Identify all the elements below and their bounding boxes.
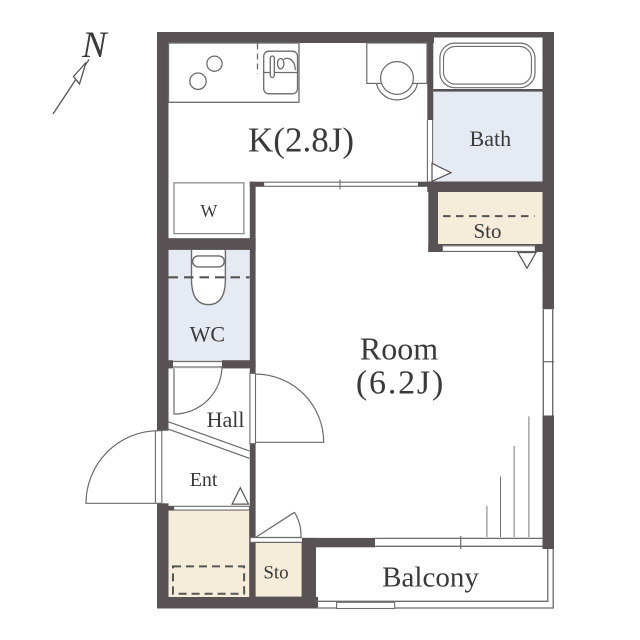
svg-text:Sto: Sto (263, 563, 288, 584)
svg-text:N: N (81, 25, 109, 66)
svg-text:K(2.8J): K(2.8J) (248, 121, 354, 160)
svg-text:W: W (200, 201, 217, 221)
svg-text:Room: Room (360, 331, 438, 367)
svg-text:(6.2J): (6.2J) (356, 365, 445, 402)
svg-text:Sto: Sto (473, 219, 501, 243)
svg-text:Hall: Hall (207, 407, 245, 432)
svg-text:Ent: Ent (190, 469, 218, 491)
svg-text:Bath: Bath (470, 126, 512, 151)
svg-text:WC: WC (190, 322, 225, 347)
svg-text:Balcony: Balcony (382, 562, 479, 594)
